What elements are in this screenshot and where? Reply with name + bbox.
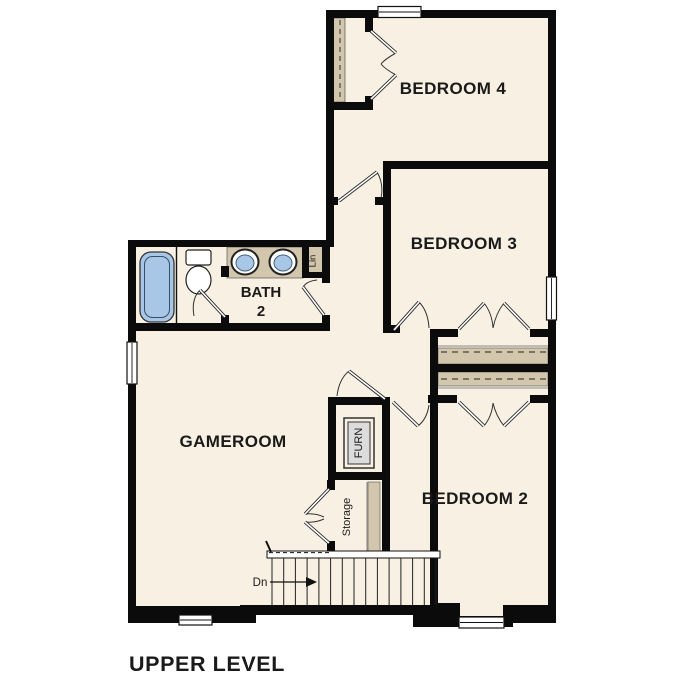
wall-closet-middle bbox=[436, 364, 548, 372]
window-bedroom4-north bbox=[378, 7, 421, 18]
storage-shelf bbox=[368, 482, 380, 552]
toilet-bowl bbox=[186, 266, 211, 294]
bedroom3-label: BEDROOM 3 bbox=[411, 234, 518, 253]
vanity-sink-left-basin bbox=[236, 255, 254, 271]
wall-bedroom2-west bbox=[430, 403, 438, 615]
window-bedroom3-east bbox=[547, 277, 557, 320]
bedroom2-bay-floor bbox=[455, 600, 508, 618]
wall-west-lower bbox=[128, 240, 136, 623]
wall-bath-south bbox=[128, 323, 330, 331]
bedroom3-closet-shelf bbox=[438, 348, 548, 364]
bath-label-line2: 2 bbox=[257, 303, 265, 320]
wall-linen-south bbox=[302, 272, 322, 278]
wall-bath-north bbox=[128, 240, 330, 247]
stair-down-label: Dn bbox=[253, 577, 268, 589]
linen-closet-label: Lin bbox=[308, 255, 319, 268]
window-bedroom2-south bbox=[459, 617, 504, 628]
wall-west-upper bbox=[326, 10, 334, 247]
floor-plan-page: Dn BEDROOM 4 BEDROOM 3 BEDROOM 2 GAMEROO… bbox=[0, 0, 687, 687]
vanity-sink-right-basin bbox=[274, 255, 292, 271]
bedroom2-label: BEDROOM 2 bbox=[422, 489, 529, 508]
floor-plan-drawing: Dn BEDROOM 4 BEDROOM 3 BEDROOM 2 GAMEROO… bbox=[0, 0, 687, 687]
page-title: UPPER LEVEL bbox=[129, 652, 285, 676]
wall-north bbox=[326, 10, 556, 18]
toilet-tank bbox=[186, 250, 211, 265]
wall-bedroom4-south bbox=[383, 161, 552, 169]
storage-label: Storage bbox=[341, 498, 353, 537]
bath-label-line1: BATH bbox=[241, 284, 282, 301]
bedroom4-label: BEDROOM 4 bbox=[400, 79, 507, 98]
wall-bedroom3-west bbox=[383, 161, 391, 333]
stair-rail bbox=[267, 551, 440, 558]
window-gameroom-south bbox=[179, 615, 212, 625]
window-gameroom-west bbox=[127, 342, 137, 384]
gameroom-label: GAMEROOM bbox=[179, 432, 286, 451]
furnace-label: FURN bbox=[353, 428, 365, 459]
